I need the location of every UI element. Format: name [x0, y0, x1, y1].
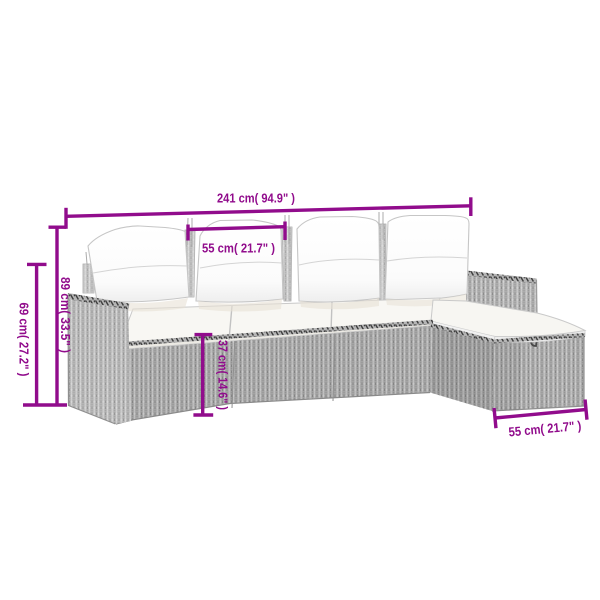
svg-text:37 cm( 14.6" ): 37 cm( 14.6" )	[216, 340, 231, 410]
svg-text:241 cm( 94.9" ): 241 cm( 94.9" )	[217, 191, 295, 206]
svg-text:55 cm( 21.7" ): 55 cm( 21.7" )	[202, 241, 275, 256]
svg-text:89 cm( 33.5" ): 89 cm( 33.5" )	[58, 277, 73, 353]
svg-text:69 cm( 27.2" ): 69 cm( 27.2" )	[17, 303, 32, 377]
